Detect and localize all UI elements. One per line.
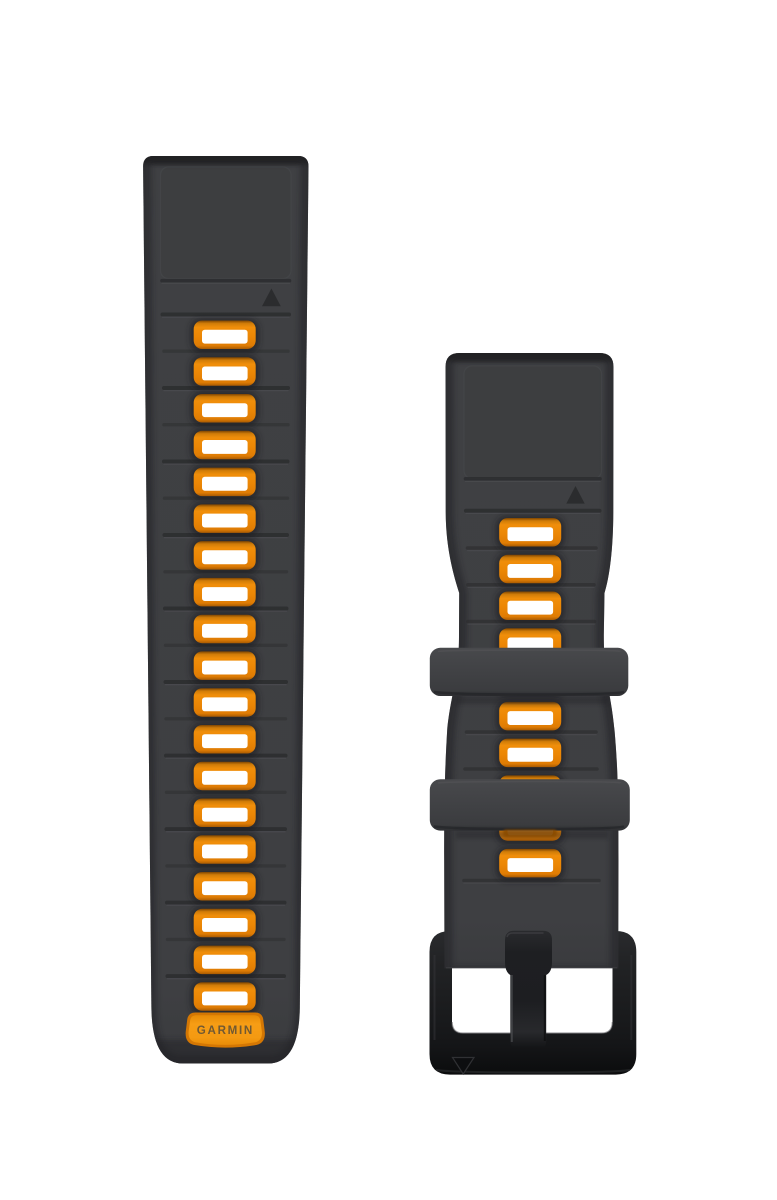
svg-text:GARMIN: GARMIN [197, 1024, 254, 1037]
